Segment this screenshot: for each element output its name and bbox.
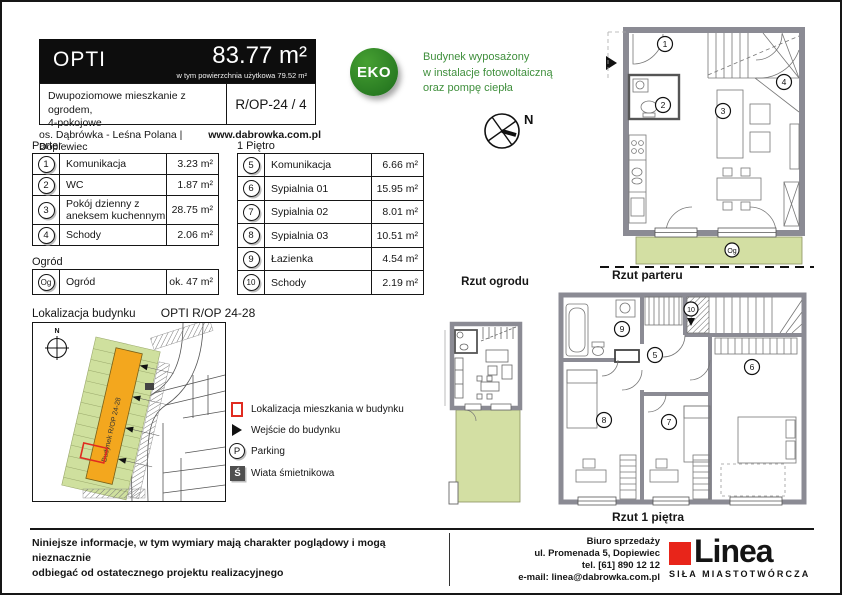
room-number-badge: 4 <box>38 227 55 244</box>
eko-badge-label: EKO <box>357 64 391 81</box>
room-number-badge: 2 <box>38 177 55 194</box>
parter-section-title: Parter <box>32 140 62 152</box>
office-phone: tel. [61] 890 12 12 <box>450 560 660 572</box>
map-compass-north-label: N <box>54 328 59 335</box>
room-area: 28.75 m² <box>167 196 219 225</box>
room-name: Komunikacja <box>265 154 372 177</box>
parter-table: 1 Komunikacja 3.23 m² 2 WC 1.87 m² 3 Pok… <box>32 153 219 246</box>
description-box: Dwupoziomowe mieszkanie z ogrodem, 4-pok… <box>39 83 316 125</box>
legend-label: Parking <box>251 446 285 457</box>
first-plan-caption: Rzut 1 piętra <box>612 510 684 524</box>
compass-north-label: N <box>524 112 533 127</box>
garden-section-title: Ogród <box>32 256 63 268</box>
compass-icon: N <box>478 104 538 156</box>
site-map-header: Lokalizacja budynku OPTI R/OP 24-28 <box>32 306 255 320</box>
eco-description: Budynek wyposażony w instalacje fotowolt… <box>423 50 553 97</box>
table-row: 10 Schody 2.19 m² <box>238 271 424 295</box>
total-area-value: 83.77 m² <box>212 42 307 70</box>
room-area: 6.66 m² <box>372 154 424 177</box>
ground-floor-plan: 1 2 3 4 Og <box>600 20 816 270</box>
usable-area-note: w tym powierzchnia użytkowa 79.52 m² <box>177 71 307 80</box>
ground-plan-walls <box>626 30 802 233</box>
table-row: 8 Sypialnia 03 10.51 m² <box>238 224 424 248</box>
unit-code: R/OP-24 / 4 <box>227 84 315 124</box>
legend-label: Wejście do budynku <box>251 425 340 436</box>
linea-logo: Linea SIŁA MIASTOTWÓRCZA <box>669 533 819 579</box>
room-number-badge: 6 <box>750 362 755 372</box>
room-number-badge: 1 <box>38 156 55 173</box>
table-row: 1 Komunikacja 3.23 m² <box>33 154 219 175</box>
entrance-arrow-icon <box>229 424 251 436</box>
parking-icon: P <box>229 443 251 459</box>
linea-logo-tagline: SIŁA MIASTOTWÓRCZA <box>669 569 819 579</box>
first-plan-walls <box>561 295 804 502</box>
office-name: Biuro sprzedaży <box>450 536 660 548</box>
map-parking-strip-bottom <box>83 489 145 498</box>
room-area: 3.23 m² <box>167 154 219 175</box>
first-floor-plan: 5 6 7 8 9 10 <box>558 292 808 506</box>
room-area: 8.01 m² <box>372 201 424 224</box>
eco-line1: Budynek wyposażony <box>423 50 553 66</box>
room-name: Pokój dzienny z aneksem kuchennym <box>60 196 167 225</box>
legend-label: Wiata śmietnikowa <box>251 468 334 479</box>
map-shed-marker <box>145 383 154 390</box>
room-number-badge: 2 <box>661 100 666 110</box>
room-name: Sypialnia 01 <box>265 177 372 201</box>
first-floor-section-title: 1 Piętro <box>237 140 275 152</box>
room-number-badge: 5 <box>243 157 260 174</box>
room-number-badge: Og <box>38 274 55 291</box>
sales-office-contact: Biuro sprzedaży ul. Promenada 5, Dopiewi… <box>450 536 660 584</box>
footer-divider <box>30 528 814 530</box>
disclaimer-line1: Niniejsze informacje, w tym wymiary mają… <box>32 536 442 566</box>
description-line1: Dwupoziomowe mieszkanie z ogrodem, <box>48 90 218 117</box>
room-number-badge: 8 <box>602 415 607 425</box>
apartment-brochure-page: OPTI 83.77 m² w tym powierzchnia użytkow… <box>0 0 842 595</box>
garden-table: Og Ogród ok. 47 m² <box>32 269 219 295</box>
legend-label: Lokalizacja mieszkania w budynku <box>251 404 404 415</box>
room-name: Sypialnia 03 <box>265 224 372 248</box>
room-name: Łazienka <box>265 248 372 271</box>
eco-line3: oraz pompę ciepła <box>423 81 553 97</box>
disclaimer-line2: odbiegać od ostatecznego projektu realiz… <box>32 566 442 581</box>
room-area: 10.51 m² <box>372 224 424 248</box>
table-row: 3 Pokój dzienny z aneksem kuchennym 28.7… <box>33 196 219 225</box>
room-number-badge: 9 <box>243 251 260 268</box>
shed-icon: Ś <box>229 466 251 481</box>
room-number-badge: 1 <box>663 39 668 49</box>
site-map-subtitle: OPTI R/OP 24-28 <box>161 306 255 320</box>
site-map-title: Lokalizacja budynku <box>32 308 136 320</box>
site-map: Budynek R/OP 24-28 <box>32 322 226 502</box>
room-number-badge: 10 <box>243 274 260 291</box>
room-area: 2.19 m² <box>372 271 424 295</box>
site-map-drawing: Budynek R/OP 24-28 <box>33 323 225 501</box>
room-name: Komunikacja <box>60 154 167 175</box>
estate-name: os. Dąbrówka - Leśna Polana | Dopiewiec <box>39 129 208 153</box>
eco-line2: w instalacje fotowoltaiczną <box>423 66 553 82</box>
legend-item-entrance: Wejście do budynku <box>229 424 409 436</box>
footer-disclaimer: Niniejsze informacje, w tym wymiary mają… <box>32 536 442 581</box>
estate-row: os. Dąbrówka - Leśna Polana | Dopiewiec … <box>39 129 321 153</box>
legend-item-parking: P Parking <box>229 443 409 459</box>
room-name: Ogród <box>60 270 167 295</box>
room-name: Sypialnia 02 <box>265 201 372 224</box>
room-area: 4.54 m² <box>372 248 424 271</box>
table-row: 6 Sypialnia 01 15.95 m² <box>238 177 424 201</box>
office-email: e-mail: linea@dabrowka.com.pl <box>450 572 660 584</box>
room-number-badge: 4 <box>782 77 787 87</box>
room-number-badge: 8 <box>243 227 260 244</box>
room-area: 1.87 m² <box>167 175 219 196</box>
table-row: 2 WC 1.87 m² <box>33 175 219 196</box>
map-legend: Lokalizacja mieszkania w budynku Wejście… <box>229 402 409 488</box>
room-name: Schody <box>265 271 372 295</box>
legend-item-shed: Ś Wiata śmietnikowa <box>229 466 409 481</box>
room-number-badge: 10 <box>687 307 695 314</box>
map-green-band: Budynek R/OP 24-28 <box>62 337 178 501</box>
room-number-badge: 9 <box>620 324 625 334</box>
table-row: 4 Schody 2.06 m² <box>33 225 219 246</box>
room-name: WC <box>60 175 167 196</box>
garden-plan <box>443 318 547 510</box>
linea-logo-red-square <box>669 542 691 565</box>
first-floor-table: 5 Komunikacja 6.66 m² 6 Sypialnia 01 15.… <box>237 153 424 295</box>
room-number-badge: 6 <box>243 180 260 197</box>
table-row: 5 Komunikacja 6.66 m² <box>238 154 424 177</box>
room-number-badge: 7 <box>243 204 260 221</box>
room-name: Schody <box>60 225 167 246</box>
apartment-description: Dwupoziomowe mieszkanie z ogrodem, 4-pok… <box>40 84 227 124</box>
room-area: 15.95 m² <box>372 177 424 201</box>
table-row: Og Ogród ok. 47 m² <box>33 270 219 295</box>
apartment-marker-icon <box>229 402 251 417</box>
room-area: 2.06 m² <box>167 225 219 246</box>
office-address: ul. Promenada 5, Dopiewiec <box>450 548 660 560</box>
room-number-badge: 3 <box>721 106 726 116</box>
linea-logo-wordmark: Linea <box>694 534 773 569</box>
ground-plan-caption: Rzut parteru <box>612 268 683 282</box>
room-number-badge: 5 <box>653 350 658 360</box>
eko-badge: EKO <box>350 48 398 96</box>
table-row: 7 Sypialnia 02 8.01 m² <box>238 201 424 224</box>
room-number-badge: 7 <box>667 417 672 427</box>
legend-item-apartment: Lokalizacja mieszkania w budynku <box>229 402 409 417</box>
room-area: ok. 47 m² <box>167 270 219 295</box>
garden-area <box>456 410 520 502</box>
header-box: OPTI 83.77 m² w tym powierzchnia użytkow… <box>39 39 316 83</box>
room-number-badge: Og <box>727 248 736 255</box>
ground-garden-strip <box>636 237 802 264</box>
room-number-badge: 3 <box>38 202 55 219</box>
garden-plan-caption: Rzut ogrodu <box>443 276 547 288</box>
map-compass-icon: N <box>45 328 69 360</box>
table-row: 9 Łazienka 4.54 m² <box>238 248 424 271</box>
apartment-type-title: OPTI <box>53 48 106 72</box>
